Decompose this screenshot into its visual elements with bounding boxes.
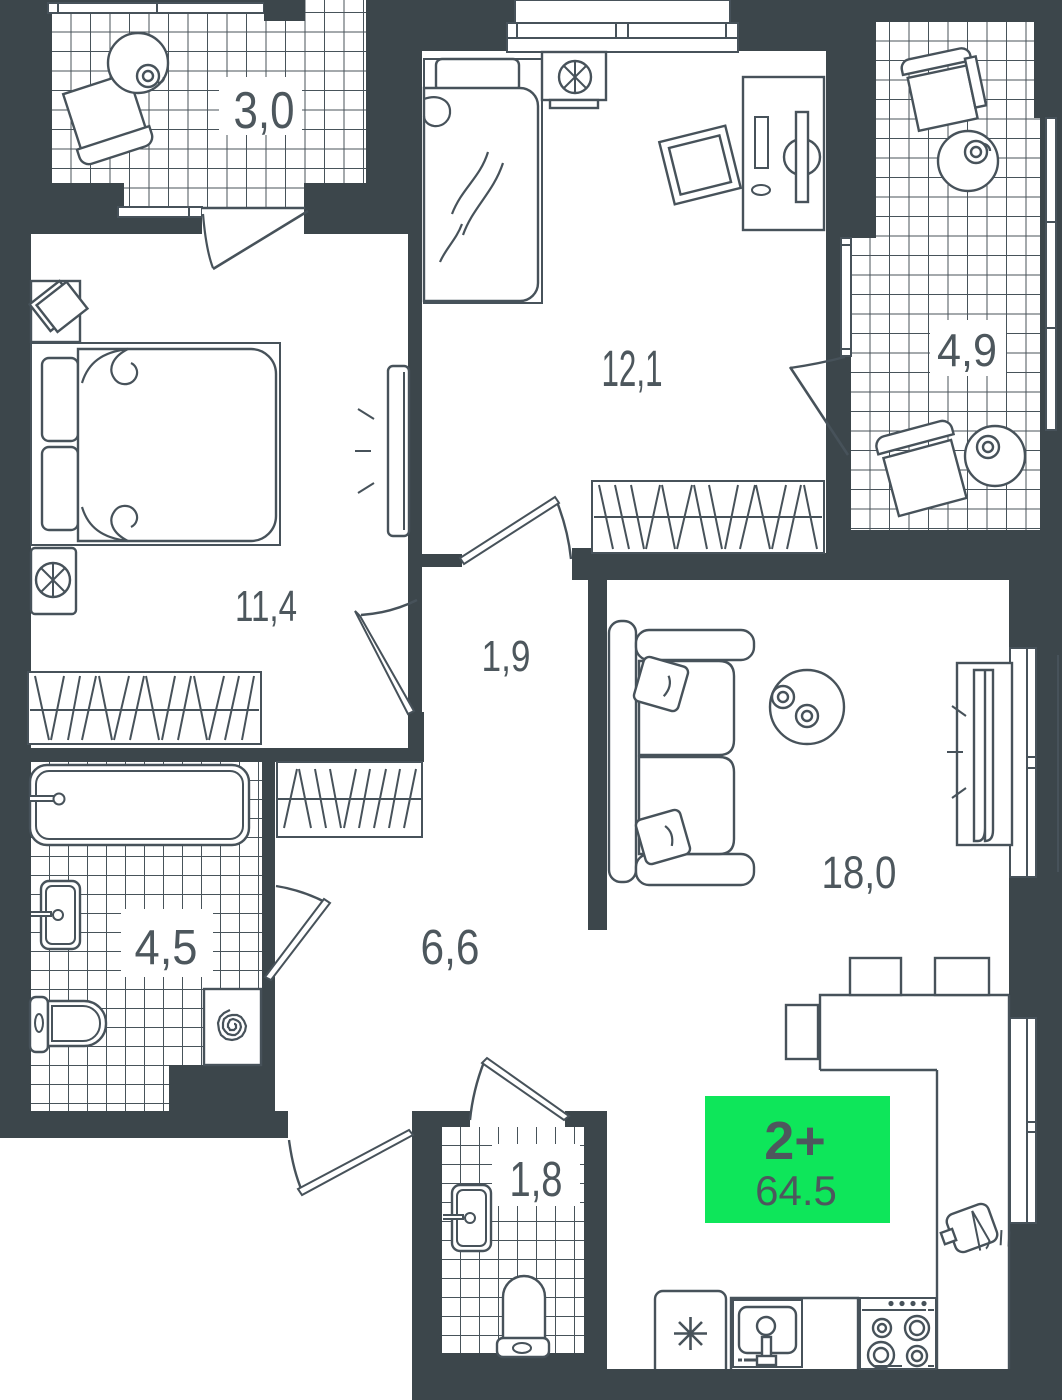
svg-text:1,8: 1,8 — [510, 1153, 563, 1207]
svg-text:1,9: 1,9 — [482, 632, 531, 681]
svg-text:4,9: 4,9 — [937, 324, 997, 376]
svg-text:6,6: 6,6 — [421, 921, 480, 975]
svg-text:3,0: 3,0 — [234, 82, 295, 140]
svg-text:18,0: 18,0 — [822, 847, 897, 898]
svg-text:12,1: 12,1 — [602, 340, 663, 397]
svg-text:4,5: 4,5 — [135, 921, 198, 975]
svg-text:2+: 2+ — [764, 1111, 826, 1171]
svg-text:11,4: 11,4 — [235, 582, 297, 631]
svg-text:64.5: 64.5 — [755, 1167, 837, 1214]
